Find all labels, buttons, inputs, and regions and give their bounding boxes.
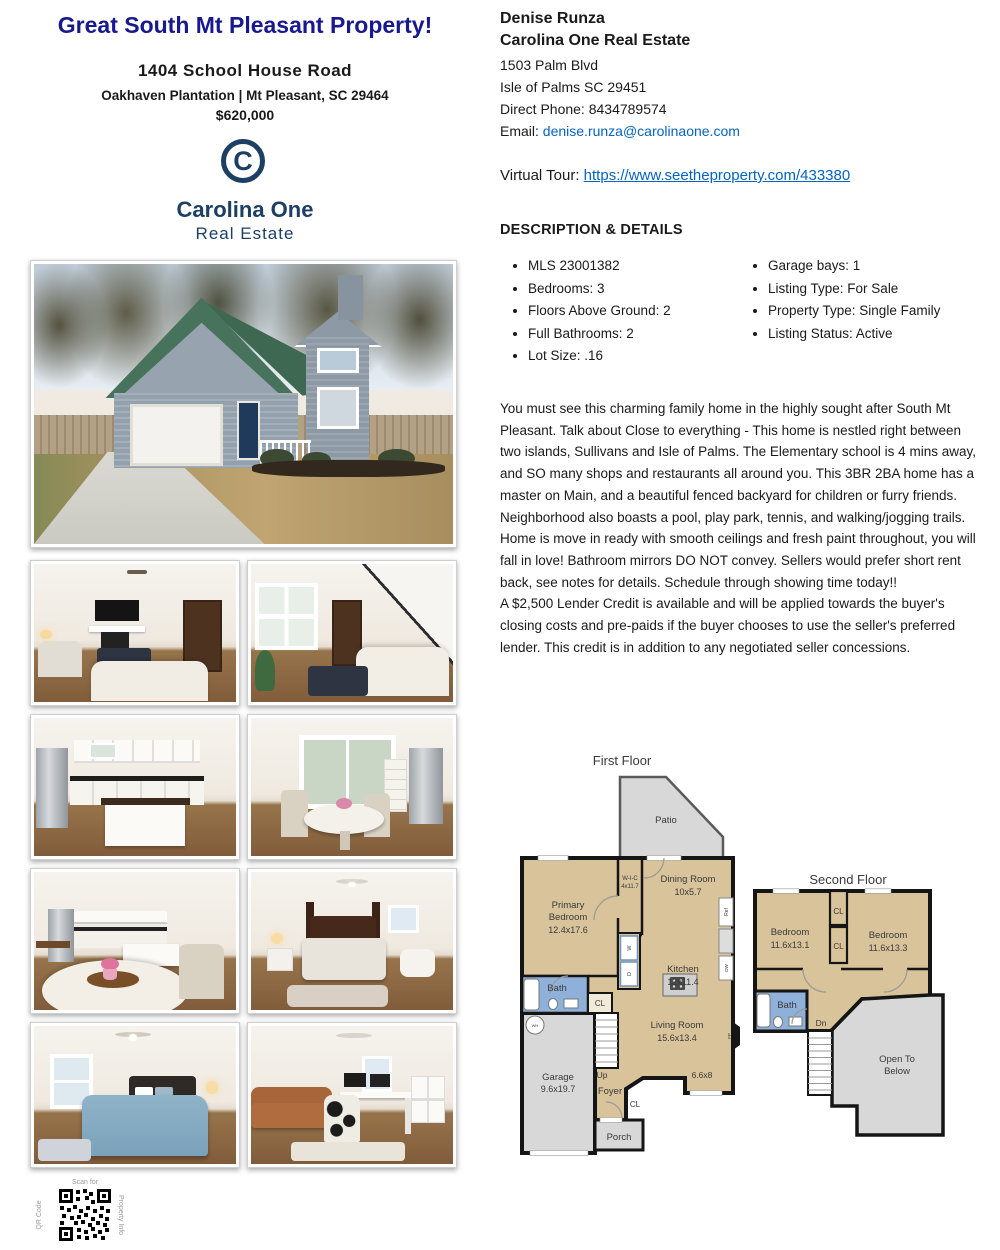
virtual-tour-link[interactable]: https://www.seetheproperty.com/433380	[584, 167, 851, 184]
patio-label: Patio	[655, 815, 677, 826]
primary-bedroom-label: Primary	[552, 900, 585, 911]
photo-kitchen-dining-view	[30, 868, 240, 1014]
bathtub-icon-2	[757, 994, 770, 1027]
open-to-below-area	[831, 995, 943, 1135]
sink-icon-2	[789, 1017, 802, 1026]
closet-mid-label: CL	[833, 942, 844, 951]
agent-company: Carolina One Real Estate	[500, 32, 980, 50]
photo-main-scene	[34, 264, 453, 544]
dw-label: DW	[724, 964, 729, 972]
svg-text:Below: Below	[884, 1066, 910, 1077]
agent-email-line: Email: denise.runza@carolinaone.com	[500, 123, 980, 139]
bathtub-icon	[524, 979, 539, 1010]
qr-caption-right: Property Info	[114, 1185, 124, 1245]
virtual-tour-label: Virtual Tour:	[500, 167, 584, 184]
bath-label-first: Bath	[547, 983, 567, 994]
agent-street: 1503 Palm Blvd	[500, 57, 980, 73]
description-details-heading: DESCRIPTION & DETAILS	[500, 222, 980, 238]
carolina-one-logo-icon: C	[221, 139, 265, 183]
detail-item: Listing Status: Active	[768, 326, 998, 341]
photo-living-room-fireplace	[30, 560, 240, 706]
description-paragraph-1: You must see this charming family home i…	[500, 398, 980, 593]
wic-label: W-I-C	[622, 876, 638, 882]
agent-phone: Direct Phone: 8434789574	[500, 101, 980, 117]
email-label: Email:	[500, 123, 543, 139]
agent-city: Isle of Palms SC 29451	[500, 79, 980, 95]
logo-mark: C	[233, 146, 253, 177]
foyer-label: Foyer	[598, 1086, 622, 1097]
detail-item: Lot Size: .16	[528, 348, 758, 363]
property-address: 1404 School House Road	[0, 61, 490, 81]
porch-label: Porch	[607, 1132, 632, 1143]
property-subdivision: Oakhaven Plantation | Mt Pleasant, SC 29…	[0, 88, 490, 103]
living-room-label: Living Room	[651, 1020, 704, 1031]
detail-item: MLS 23001382	[528, 258, 758, 273]
qr-code	[58, 1188, 112, 1242]
detail-item: Bedrooms: 3	[528, 281, 758, 296]
photo-primary-bedroom	[247, 868, 457, 1014]
open-to-below-label: Open To	[879, 1054, 915, 1065]
fireplace-notch	[733, 1022, 740, 1050]
detail-item: Garage bays: 1	[768, 258, 998, 273]
logo-brand-name: Carolina One	[0, 197, 490, 223]
email-link[interactable]: denise.runza@carolinaone.com	[543, 123, 740, 139]
virtual-tour-line: Virtual Tour: https://www.seetheproperty…	[500, 167, 980, 184]
bedroom2-dims: 11.6x13.3	[869, 943, 908, 953]
svg-text:Bedroom: Bedroom	[549, 912, 588, 923]
stove-icon	[719, 929, 733, 953]
details-list-right: Garage bays: 1 Listing Type: For Sale Pr…	[752, 258, 998, 348]
flyer-title: Great South Mt Pleasant Property!	[0, 12, 490, 39]
ref-label: Ref	[724, 907, 730, 915]
bath-label-second: Bath	[777, 1000, 797, 1011]
detail-item: Floors Above Ground: 2	[528, 303, 758, 318]
dryer-label: D	[627, 972, 633, 976]
garage-label: Garage	[542, 1072, 574, 1083]
photo-breakfast-nook	[247, 714, 457, 860]
living-room-dims: 15.6x13.4	[657, 1033, 697, 1043]
garage-dims: 9.6x19.7	[541, 1084, 576, 1094]
bedroom1-dims: 11.6x13.1	[771, 940, 810, 950]
floorplan-first-floor: First Floor Patio	[500, 748, 752, 1160]
qr-caption-left: QR Code	[36, 1190, 46, 1240]
stairs-down	[808, 1031, 832, 1095]
washer-label: W	[627, 945, 633, 951]
photo-home-office	[247, 1022, 457, 1168]
kitchen-label: Kitchen	[667, 964, 699, 975]
dn-label: Dn	[816, 1018, 827, 1028]
kitchen-dims: 12x11.4	[667, 977, 698, 987]
detail-item: Listing Type: For Sale	[768, 281, 998, 296]
toilet-icon	[549, 999, 558, 1010]
closet-label: CL	[595, 999, 606, 1008]
details-list-left: MLS 23001382 Bedrooms: 3 Floors Above Gr…	[512, 258, 758, 371]
property-price: $620,000	[0, 107, 490, 123]
closet-top-label: CL	[833, 907, 844, 916]
dining-room-dims: 10x5.7	[674, 887, 701, 897]
fp-label: FP	[727, 1033, 732, 1039]
photo-living-room-staircase	[247, 560, 457, 706]
photo-kitchen-island	[30, 714, 240, 860]
photo-main-exterior	[30, 260, 457, 548]
bedroom1-label: Bedroom	[771, 927, 810, 938]
logo-brand-sub: Real Estate	[0, 224, 490, 244]
wic-dims: 4x11.7	[621, 884, 639, 890]
up-label: Up	[597, 1070, 608, 1080]
toilet-icon-2	[774, 1017, 783, 1028]
description-paragraph-2: A $2,500 Lender Credit is available and …	[500, 593, 980, 658]
foyer-closet-label: CL	[630, 1100, 641, 1109]
wh-label: WH	[532, 1023, 539, 1028]
photo-bedroom-blue	[30, 1022, 240, 1168]
detail-item: Full Bathrooms: 2	[528, 326, 758, 341]
dining-room-label: Dining Room	[661, 874, 716, 885]
nook-dims: 6.6x8	[692, 1070, 713, 1080]
sink-icon	[564, 999, 578, 1008]
floorplan2-title: Second Floor	[809, 872, 887, 887]
flyer-page: Great South Mt Pleasant Property! 1404 S…	[0, 0, 1000, 1250]
floorplan-second-floor: Second Floor Bedroom 11.6x13.1 CL CL Bed…	[745, 858, 960, 1150]
agent-name: Denise Runza	[500, 10, 980, 28]
property-description: You must see this charming family home i…	[500, 398, 980, 658]
bedroom2-label: Bedroom	[869, 930, 908, 941]
floorplan1-title: First Floor	[593, 753, 652, 768]
primary-bedroom-dims: 12.4x17.6	[548, 925, 588, 935]
detail-item: Property Type: Single Family	[768, 303, 998, 318]
qr-caption-top: Scan for	[58, 1179, 112, 1186]
